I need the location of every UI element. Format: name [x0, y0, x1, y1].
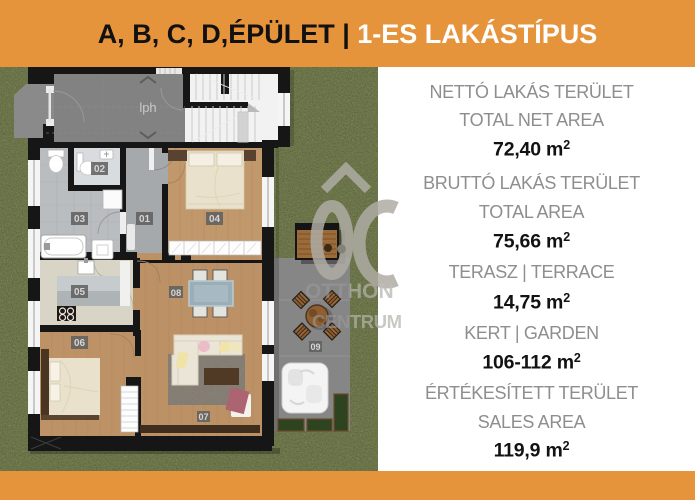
svg-text:09: 09: [310, 342, 320, 352]
svg-text:lph: lph: [139, 100, 156, 115]
svg-text:01: 01: [139, 214, 151, 225]
svg-text:02: 02: [94, 164, 106, 175]
svg-text:07: 07: [198, 412, 208, 422]
svg-text:03: 03: [74, 214, 86, 225]
svg-text:04: 04: [209, 214, 221, 225]
svg-text:08: 08: [171, 288, 182, 299]
svg-text:05: 05: [74, 287, 86, 298]
svg-text:06: 06: [74, 338, 86, 349]
